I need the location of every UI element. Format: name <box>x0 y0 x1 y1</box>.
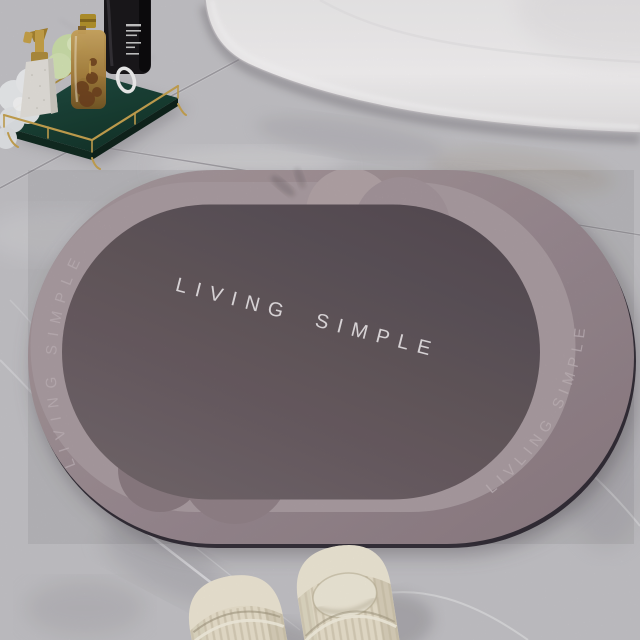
bathroom-product-photo: LIVING SIMPLE LIVING SIMPLE LIVLING SIMP… <box>0 0 640 640</box>
scene-canvas: LIVING SIMPLE LIVING SIMPLE LIVLING SIMP… <box>0 0 640 640</box>
mat-texture-overlay <box>28 170 634 544</box>
